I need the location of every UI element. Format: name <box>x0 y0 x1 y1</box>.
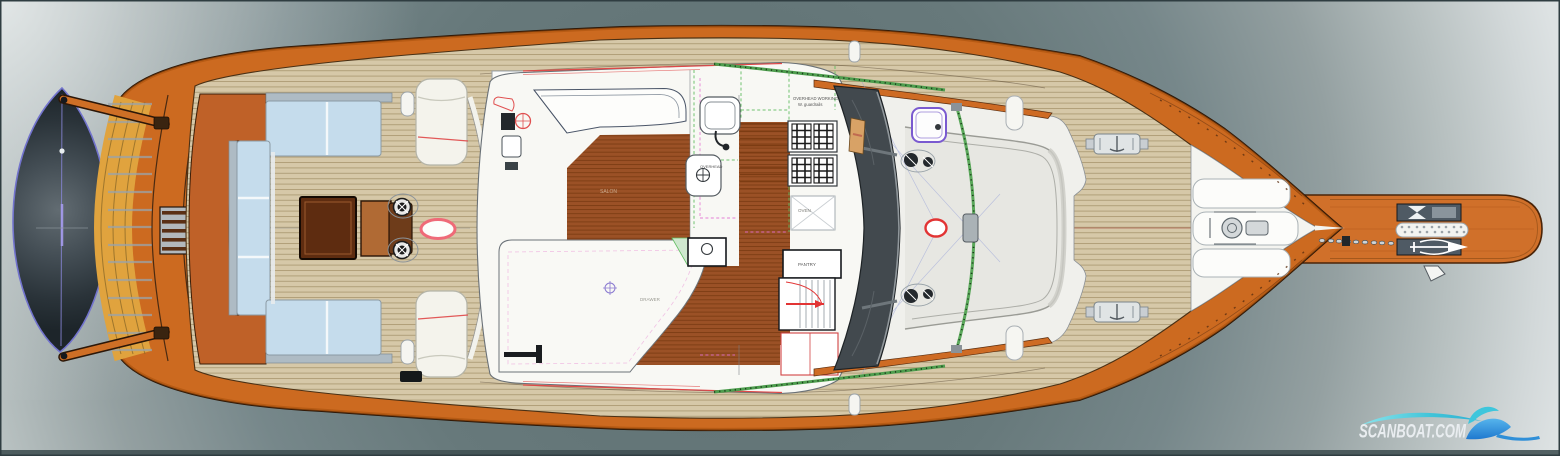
svg-text:DRAWER: DRAWER <box>640 297 661 302</box>
svg-text:OVERHEAD: OVERHEAD <box>700 164 723 169</box>
svg-text:PANTRY: PANTRY <box>798 262 816 267</box>
svg-text:OVEN: OVEN <box>798 208 811 213</box>
svg-text:SALON: SALON <box>600 189 617 195</box>
svg-text:OVERHEAD WORKING: OVERHEAD WORKING <box>793 96 838 101</box>
svg-text:SCANBOAT.COM: SCANBOAT.COM <box>1359 422 1467 443</box>
svg-text:W. guardrails: W. guardrails <box>798 102 822 107</box>
